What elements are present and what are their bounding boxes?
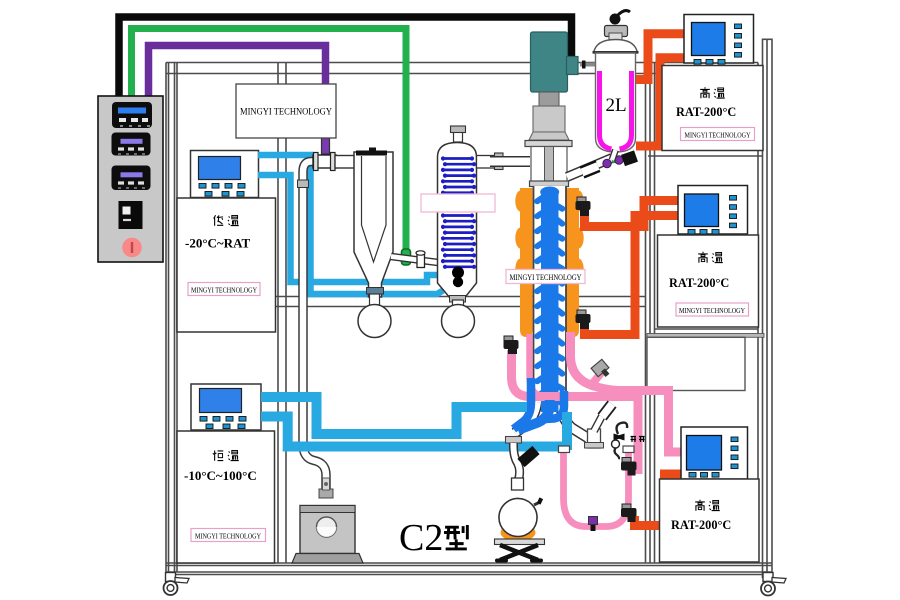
svg-text:MINGYI TECHNOLOGY: MINGYI TECHNOLOGY [679, 306, 745, 315]
svg-text:MINGYI TECHNOLOGY: MINGYI TECHNOLOGY [510, 273, 582, 282]
svg-text:RAT-200°C: RAT-200°C [669, 276, 729, 290]
svg-text:MINGYI TECHNOLOGY: MINGYI TECHNOLOGY [240, 107, 332, 118]
svg-text:C2: C2 [399, 517, 443, 559]
svg-text:RAT-200°C: RAT-200°C [676, 105, 736, 119]
svg-text:MINGYI TECHNOLOGY: MINGYI TECHNOLOGY [195, 531, 261, 540]
svg-text:2L: 2L [605, 95, 626, 116]
svg-text:MINGYI TECHNOLOGY: MINGYI TECHNOLOGY [191, 285, 257, 294]
svg-text:RAT-200°C: RAT-200°C [671, 518, 731, 532]
svg-text:-10°C~100°C: -10°C~100°C [184, 468, 257, 483]
svg-text:MINGYI TECHNOLOGY: MINGYI TECHNOLOGY [685, 130, 751, 139]
svg-text:-20°C~RAT: -20°C~RAT [185, 236, 250, 251]
